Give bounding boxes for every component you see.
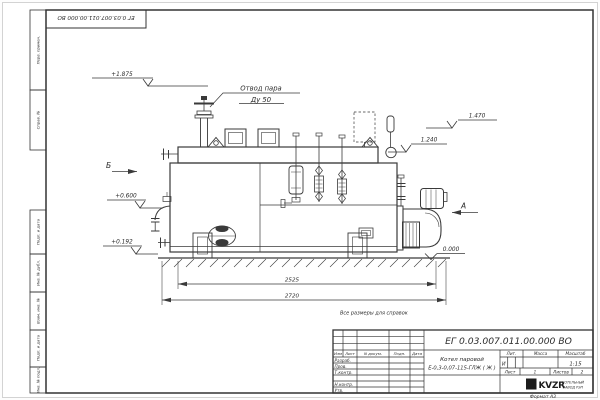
format-label: Формат А3 — [530, 394, 556, 400]
margin-cell-label: Справ. № — [36, 111, 41, 130]
col-header-doc: N докум. — [364, 351, 382, 356]
sheet-label: Лист — [504, 369, 516, 374]
sheets-value: 2 — [581, 369, 584, 374]
kvzr-logo-caption1: КОТЕЛЬНЫЙ — [562, 380, 584, 385]
lit-label: Лит. — [506, 351, 517, 356]
scale-label: Масштаб — [566, 351, 586, 356]
blueprint-canvas: Перв. примен. Справ. № Подп. и дата Инв.… — [0, 0, 600, 400]
kvzr-logo-caption2: ЗАВОД РЭП — [563, 386, 584, 390]
row-label-nkontr: Н.контр. — [335, 382, 354, 387]
reference-note: Все размеры для справок — [340, 311, 408, 317]
margin-cell-label: Подп. и дата — [36, 218, 41, 245]
scale-value: 1:15 — [569, 362, 582, 368]
col-header-sign: Подп. — [394, 351, 406, 356]
mass-label: Масса — [534, 351, 548, 356]
elevation-label: 1.240 — [421, 138, 438, 144]
col-header-list: Лист — [344, 351, 356, 356]
margin-cell-label: Инв. № подл. — [36, 367, 41, 393]
kvzr-logo-mark-icon — [526, 379, 537, 390]
margin-cell-label: Взам. инв. № — [36, 298, 41, 324]
row-label-prov: Пров. — [335, 364, 347, 369]
callout-line2: Ду 50 — [250, 96, 271, 104]
margin-cell-label: Инв. № дубл. — [36, 260, 41, 286]
view-b-label: Б — [106, 161, 111, 170]
dimension-label: 2720 — [285, 294, 300, 300]
col-header-izm: Изм — [334, 351, 342, 356]
sheet-value: 1 — [534, 369, 537, 374]
elevation-label: 1.470 — [469, 114, 486, 120]
doc-number: ЕГ 0.03.007.011.00.000 ВО — [445, 336, 572, 347]
elevation-label: +0.600 — [115, 194, 137, 200]
elevation-label: 0.000 — [443, 247, 460, 253]
col-header-date: Дата — [411, 351, 423, 356]
dimension-label: 2525 — [285, 278, 300, 284]
product-name-line1: Котел паровой — [440, 357, 484, 363]
margin-cell-label: Подп. и дата — [36, 334, 41, 361]
lit-value: И — [502, 362, 506, 368]
row-label-tkontr: Т.контр. — [335, 370, 353, 375]
view-a-label: А — [460, 202, 466, 211]
sheets-label: Листов — [552, 369, 569, 374]
manhole — [209, 226, 236, 247]
kvzr-logo: KVZR КОТЕЛЬНЫЙ ЗАВОД РЭП — [526, 379, 584, 392]
elevation-label: +0.192 — [111, 240, 133, 246]
blueprint-page: Перв. примен. Справ. № Подп. и дата Инв.… — [0, 0, 600, 400]
margin-cell-label: Перв. примен. — [36, 36, 41, 65]
product-name-line2: Е-0,3-0,07-115-ГЛЖ ( Ж ) — [428, 366, 495, 372]
row-label-utv: Утв. — [335, 388, 344, 393]
callout-line1: Отвод пара — [240, 85, 281, 93]
row-label-razrab: Разраб. — [335, 358, 351, 363]
elevation-label: +1.875 — [111, 72, 133, 78]
top-stamp-number: ЕГ 0.03.007.011.00.000 ВО — [57, 14, 135, 20]
